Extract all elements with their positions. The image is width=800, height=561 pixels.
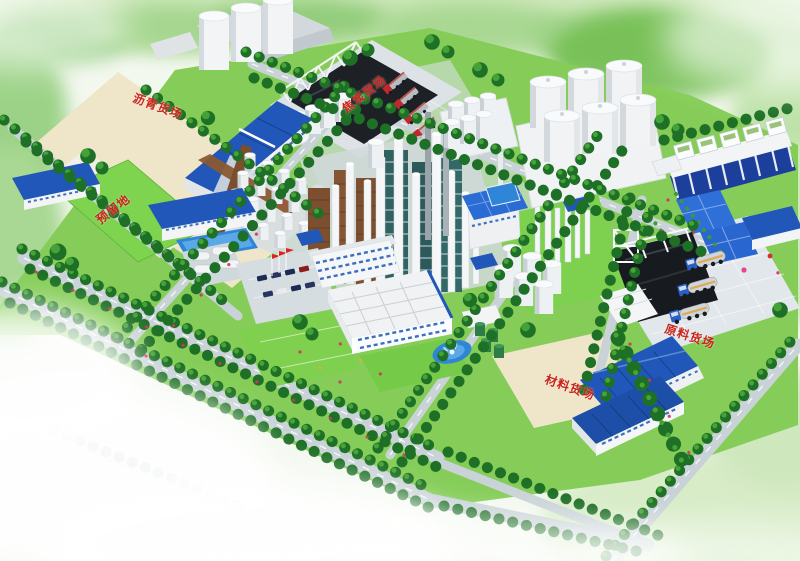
plant-scene [0, 0, 800, 561]
silo [199, 11, 229, 70]
plant-rendering: 沥青货场 预留地 焦炭货场 原料货场 材料货场 [0, 0, 800, 561]
chimney [425, 112, 431, 240]
silo [263, 0, 293, 54]
